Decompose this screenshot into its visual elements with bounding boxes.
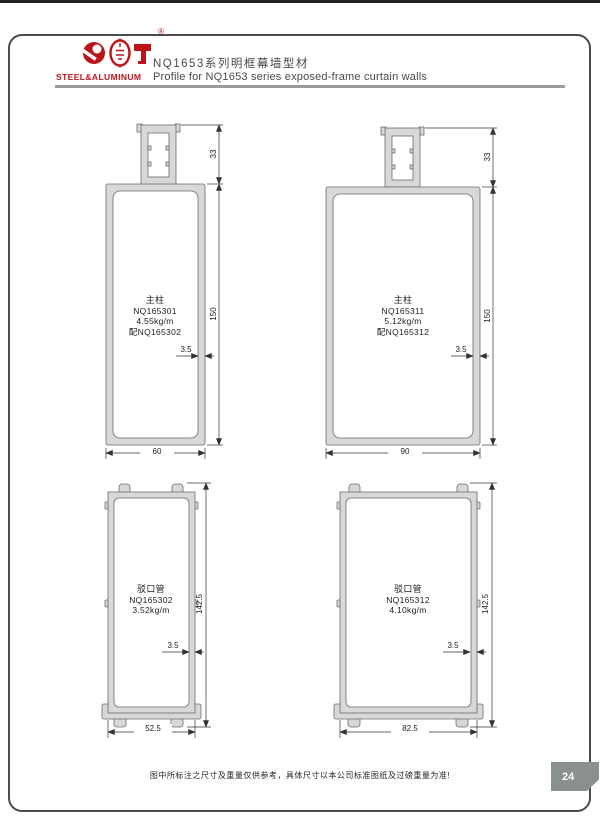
dim-label-height-nq165302: 142.5 [194, 592, 204, 616]
footer-disclaimer: 图中所标注之尺寸及重量仅供参考，具体尺寸以本公司标准图纸及过磅重量为准! [40, 770, 560, 781]
dim-label-width-nq165302: 52.5 [134, 724, 172, 733]
dim-label-width-nq165312: 82.5 [391, 724, 429, 733]
profile-drawing-nq165301 [106, 124, 205, 445]
dim-label-wall-nq165302: 3.5 [163, 641, 183, 650]
profile-weight: 3.52kg/m [101, 605, 201, 616]
dim-label-width-nq165311: 90 [388, 447, 422, 456]
dim-label-wall-nq165311: 3.5 [451, 345, 471, 354]
dim-label-height-nq165312: 142.5 [480, 592, 490, 616]
profile-paired: 配NQ165312 [353, 327, 453, 338]
profile-code: NQ165312 [358, 595, 458, 606]
profile-code: NQ165302 [101, 595, 201, 606]
dim-label-wall-nq165312: 3.5 [443, 641, 463, 650]
profile-name: 主柱 [353, 295, 453, 306]
profile-info-nq165311: 主柱 NQ165311 5.12kg/m 配NQ165312 [353, 295, 453, 337]
profile-name: 驳口管 [358, 584, 458, 595]
dim-label-width-nq165301: 60 [140, 447, 174, 456]
profile-info-nq165302: 驳口管 NQ165302 3.52kg/m [101, 584, 201, 616]
dim-label-top-nq165301: 33 [208, 148, 218, 160]
profile-info-nq165312: 驳口管 NQ165312 4.10kg/m [358, 584, 458, 616]
profile-code: NQ165301 [105, 306, 205, 317]
dim-label-top-nq165311: 33 [482, 151, 492, 163]
profile-paired: 配NQ165302 [105, 327, 205, 338]
profile-name: 驳口管 [101, 584, 201, 595]
technical-drawings [0, 0, 600, 820]
dim-label-wall-nq165301: 3.5 [176, 345, 196, 354]
profile-weight: 4.10kg/m [358, 605, 458, 616]
profile-drawing-nq165311 [326, 127, 480, 445]
profile-weight: 4.55kg/m [105, 316, 205, 327]
profile-code: NQ165311 [353, 306, 453, 317]
profile-info-nq165301: 主柱 NQ165301 4.55kg/m 配NQ165302 [105, 295, 205, 337]
profile-weight: 5.12kg/m [353, 316, 453, 327]
dim-label-height-nq165301: 150 [208, 305, 218, 323]
dim-label-height-nq165311: 150 [482, 307, 492, 325]
profile-name: 主柱 [105, 295, 205, 306]
